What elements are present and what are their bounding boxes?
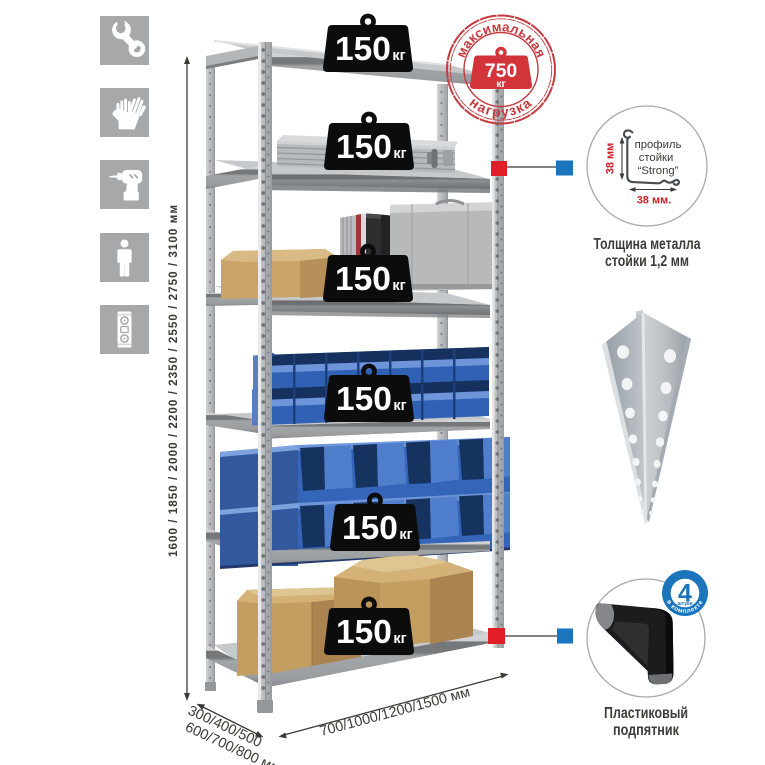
svg-text:1600 / 1850 / 2000 / 2200 / 23: 1600 / 1850 / 2000 / 2200 / 2350 / 2550 … — [167, 205, 180, 557]
svg-text:Пластиковый: Пластиковый — [604, 705, 688, 722]
svg-text:подпятник: подпятник — [613, 722, 679, 739]
svg-text:штуки: штуки — [677, 601, 692, 607]
svg-text:стойки: стойки — [639, 152, 674, 164]
svg-text:кг: кг — [496, 78, 506, 90]
svg-text:Толщина металла: Толщина металла — [594, 236, 701, 253]
svg-text:38 мм.: 38 мм. — [637, 195, 672, 207]
svg-text:стойки 1,2 мм: стойки 1,2 мм — [605, 253, 689, 270]
svg-text:профиль: профиль — [635, 139, 682, 151]
svg-text:38 мм: 38 мм — [605, 143, 617, 175]
svg-text:“Strong”: “Strong” — [638, 165, 679, 177]
